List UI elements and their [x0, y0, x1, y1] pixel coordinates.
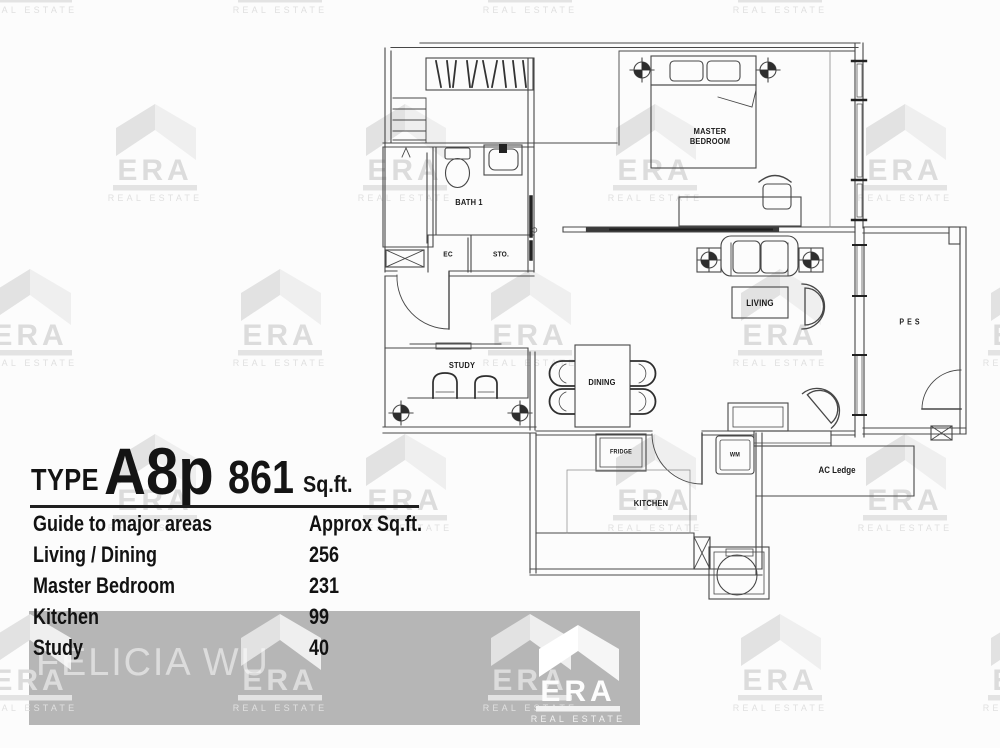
table-row-label: Kitchen — [33, 604, 99, 630]
room-label-living: LIVING — [746, 298, 773, 308]
room-label-sto: STO. — [493, 250, 509, 259]
table-row-label: Living / Dining — [33, 542, 157, 568]
room-label-ac-ledge: AC Ledge — [819, 465, 856, 475]
unit-area-unit: Sq.ft. — [303, 471, 352, 498]
table-row-value: 99 — [309, 604, 329, 630]
room-label-bath1: BATH 1 — [455, 197, 483, 207]
room-label-pes: PES — [899, 318, 922, 327]
room-label-master-bedroom: MASTER BEDROOM — [690, 126, 730, 146]
room-label-ec: EC — [443, 250, 453, 259]
table-row-value: 231 — [309, 573, 339, 599]
floor-plan-drawing — [0, 0, 1000, 748]
title-divider-rule — [30, 505, 419, 508]
table-row-label: Master Bedroom — [33, 573, 175, 599]
table-row-value: 40 — [309, 635, 329, 661]
table-header-sqft: Approx Sq.ft. — [309, 511, 422, 537]
room-label-wm: WM — [730, 452, 740, 459]
table-row-value: 256 — [309, 542, 339, 568]
floor-plan-page: ERAREAL ESTATEERAREAL ESTATEERAREAL ESTA… — [0, 0, 1000, 748]
room-label-study: STUDY — [449, 360, 475, 370]
room-label-fridge: FRIDGE — [610, 449, 632, 456]
table-header-areas: Guide to major areas — [33, 511, 212, 537]
room-label-dining: DINING — [588, 377, 615, 387]
unit-type-label: TYPE — [31, 462, 99, 498]
table-row-label: Study — [33, 635, 83, 661]
room-label-kitchen: KITCHEN — [634, 498, 668, 508]
unit-area-value: 861 — [228, 450, 294, 504]
unit-type-code: A8p — [104, 433, 214, 509]
